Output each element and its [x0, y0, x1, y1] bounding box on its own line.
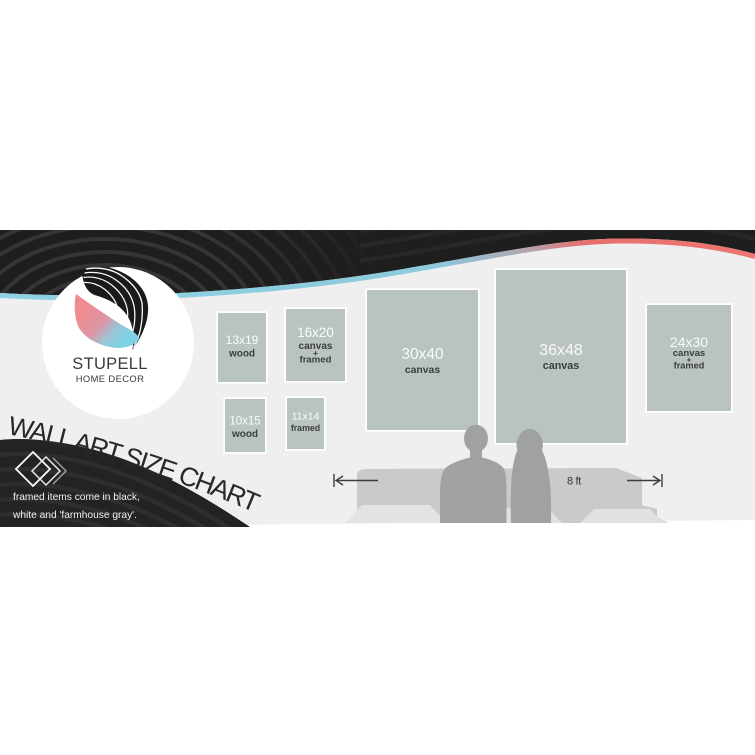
- svg-text:canvas: canvas: [405, 365, 440, 376]
- svg-text:11x14: 11x14: [292, 411, 320, 423]
- svg-text:white and 'farmhouse gray'.: white and 'farmhouse gray'.: [12, 510, 137, 521]
- svg-text:wood: wood: [231, 429, 258, 440]
- svg-text:36x48: 36x48: [539, 342, 583, 359]
- svg-text:8 ft: 8 ft: [567, 476, 581, 488]
- svg-text:framed: framed: [300, 355, 332, 366]
- svg-text:framed: framed: [674, 361, 705, 371]
- svg-text:framed items come in black,: framed items come in black,: [13, 492, 140, 503]
- svg-text:canvas: canvas: [543, 360, 580, 372]
- svg-text:30x40: 30x40: [401, 346, 444, 363]
- svg-text:STUPELL: STUPELL: [72, 355, 147, 373]
- svg-text:13x19: 13x19: [226, 333, 259, 347]
- svg-text:wood: wood: [228, 349, 255, 360]
- svg-text:HOME DECOR: HOME DECOR: [76, 373, 145, 384]
- svg-text:10x15: 10x15: [229, 416, 260, 428]
- svg-text:16x20: 16x20: [297, 325, 334, 340]
- svg-text:framed: framed: [291, 423, 320, 433]
